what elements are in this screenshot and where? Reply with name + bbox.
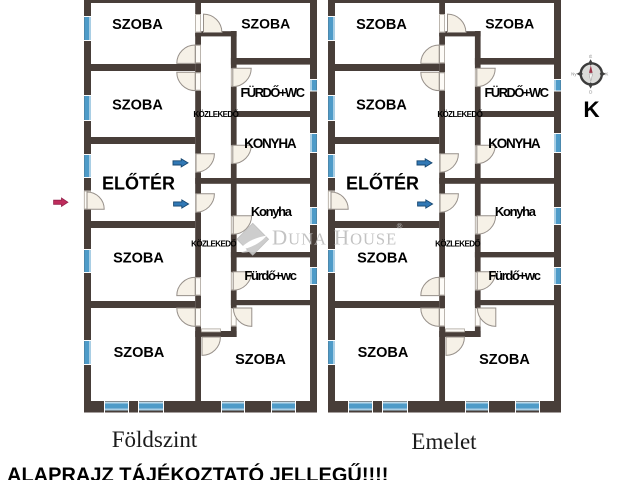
svg-text:SZOBA: SZOBA (356, 98, 407, 114)
svg-text:SZOBA: SZOBA (112, 17, 163, 33)
svg-text:SZOBA: SZOBA (113, 251, 164, 267)
svg-text:DUNAHOUSE: DUNAHOUSE (272, 226, 397, 250)
svg-text:KONYHA: KONYHA (244, 136, 297, 151)
svg-text:SZOBA: SZOBA (479, 352, 530, 368)
svg-text:Fürdő+wc: Fürdő+wc (244, 268, 296, 283)
svg-text:SZOBA: SZOBA (358, 345, 409, 361)
svg-text:É: É (589, 53, 592, 59)
svg-text:SZOBA: SZOBA (241, 16, 290, 32)
svg-text:®: ® (397, 222, 403, 231)
svg-text:SZOBA: SZOBA (235, 352, 286, 368)
svg-text:Földszint: Földszint (112, 427, 198, 452)
svg-text:Konyha: Konyha (495, 204, 537, 219)
svg-text:K: K (583, 97, 600, 122)
svg-text:K: K (605, 72, 608, 77)
svg-text:KÖZLEKEDŐ: KÖZLEKEDŐ (437, 110, 482, 119)
svg-text:Ny: Ny (571, 72, 577, 77)
svg-text:ALAPRAJZ TÁJÉKOZTATÓ JELLEGŰ!!: ALAPRAJZ TÁJÉKOZTATÓ JELLEGŰ!!!! (7, 463, 388, 480)
svg-text:SZOBA: SZOBA (112, 98, 163, 114)
svg-text:Konyha: Konyha (251, 204, 293, 219)
svg-text:SZOBA: SZOBA (114, 345, 165, 361)
svg-text:ELŐTÉR: ELŐTÉR (346, 173, 419, 194)
svg-text:ELŐTÉR: ELŐTÉR (102, 173, 175, 194)
svg-text:KÖZLEKEDŐ: KÖZLEKEDŐ (193, 110, 238, 119)
svg-text:SZOBA: SZOBA (356, 17, 407, 33)
svg-text:Fürdő+wc: Fürdő+wc (488, 268, 540, 283)
svg-text:Emelet: Emelet (411, 429, 477, 454)
svg-text:FÜRDŐ+WC: FÜRDŐ+WC (484, 85, 548, 100)
svg-text:KONYHA: KONYHA (488, 136, 541, 151)
svg-text:SZOBA: SZOBA (357, 251, 408, 267)
svg-text:KÖZLEKEDŐ: KÖZLEKEDŐ (435, 240, 480, 249)
svg-text:SZOBA: SZOBA (485, 16, 534, 32)
svg-text:FÜRDŐ+WC: FÜRDŐ+WC (240, 85, 304, 100)
svg-text:KÖZLEKEDŐ: KÖZLEKEDŐ (191, 240, 236, 249)
